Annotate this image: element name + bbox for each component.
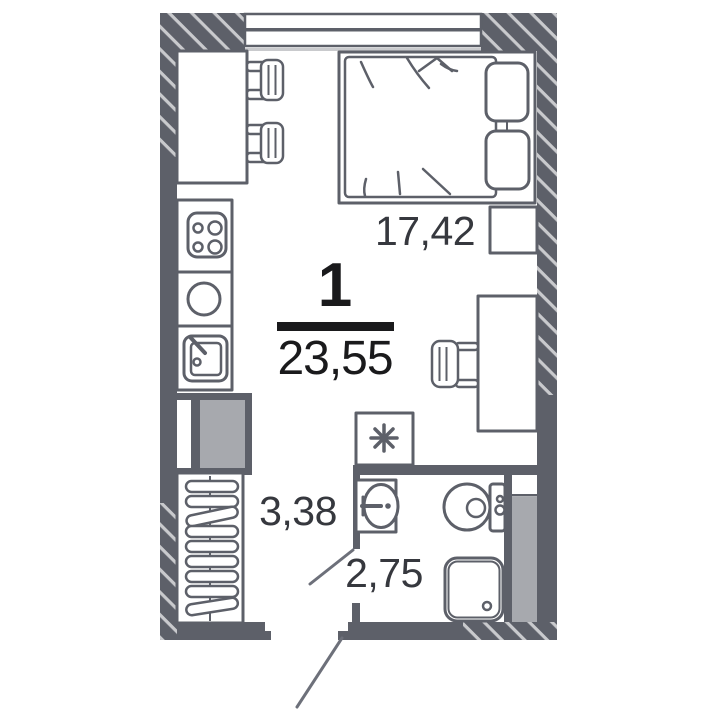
- window: [245, 14, 481, 51]
- washing-machine-icon: [356, 413, 413, 465]
- bed-icon: [339, 52, 535, 203]
- bottom-wall-left-step: [265, 631, 271, 640]
- duct-shaft: [512, 494, 537, 622]
- shower-tray-icon: [445, 558, 503, 621]
- asterisk-icon: [371, 425, 397, 451]
- desk-chair-icon: [432, 341, 478, 387]
- right-wall-lower: [537, 395, 557, 622]
- bottom-wall-middle: [348, 622, 463, 640]
- summary-divider: [277, 322, 394, 331]
- refrigerator: [200, 400, 245, 468]
- nightstand: [490, 207, 537, 253]
- right-wall-upper-hatched: [537, 13, 557, 395]
- bathroom-area-label: 2,75: [345, 553, 423, 594]
- top-wall-right-hatched: [481, 13, 537, 51]
- entrance-door-swing: [297, 638, 342, 707]
- bottom-wall-right-hatched: [463, 622, 557, 640]
- hob-icon: [188, 213, 226, 257]
- total-area-label: 23,55: [273, 339, 397, 379]
- left-wall-lower-hatched: [160, 503, 177, 640]
- kitchen-round-sink-icon: [188, 283, 220, 315]
- living-room-area-label: 17,42: [375, 211, 475, 252]
- refrigerator-niche: [177, 393, 252, 475]
- desk: [478, 296, 537, 431]
- bottom-wall-left: [177, 622, 265, 640]
- pillow: [486, 63, 528, 121]
- pillow: [486, 131, 529, 189]
- bar-stool-icon: [247, 60, 283, 100]
- bathroom-sink-icon: [356, 480, 398, 532]
- floor-plan: 17,42 3,38 2,75 1 23,55: [0, 0, 720, 720]
- kitchen-counter: [177, 51, 247, 183]
- apartment-summary: 1 23,55: [273, 260, 397, 379]
- bathroom-door-jamb: [352, 603, 360, 622]
- window-mullion: [245, 28, 481, 32]
- kitchen-sink-icon: [184, 336, 227, 381]
- hallway-area-label: 3,38: [259, 491, 337, 532]
- wardrobe-icon: [177, 473, 243, 623]
- left-wall-middle: [160, 157, 177, 503]
- top-wall-left-hatched: [177, 13, 245, 51]
- room-count-label: 1: [273, 260, 397, 312]
- left-wall-upper-hatched: [160, 13, 177, 157]
- toilet-icon: [444, 484, 505, 531]
- bar-stool-icon: [247, 123, 283, 163]
